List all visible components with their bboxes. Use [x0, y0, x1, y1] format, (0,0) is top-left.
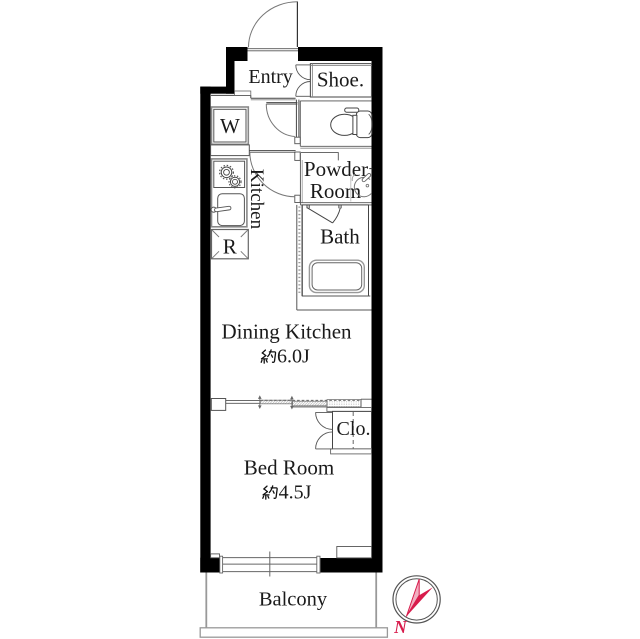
svg-text:Shoe.: Shoe.: [317, 68, 364, 92]
svg-text:Bed Room: Bed Room: [244, 456, 334, 480]
svg-text:Entry: Entry: [248, 66, 292, 88]
svg-text:Powder: Powder: [304, 157, 368, 181]
svg-text:W: W: [220, 114, 240, 138]
svg-text:Dining Kitchen: Dining Kitchen: [221, 319, 352, 343]
svg-text:N: N: [393, 617, 408, 637]
svg-text:Room: Room: [310, 179, 361, 203]
svg-text:Clo.: Clo.: [337, 418, 371, 440]
svg-text:Bath: Bath: [320, 224, 360, 248]
svg-text:4.5J: 4.5J: [279, 482, 312, 504]
svg-text:R: R: [223, 235, 237, 259]
svg-text:6.0J: 6.0J: [277, 346, 310, 368]
svg-text:Kitchen: Kitchen: [246, 169, 267, 230]
svg-text:Balcony: Balcony: [259, 589, 328, 611]
